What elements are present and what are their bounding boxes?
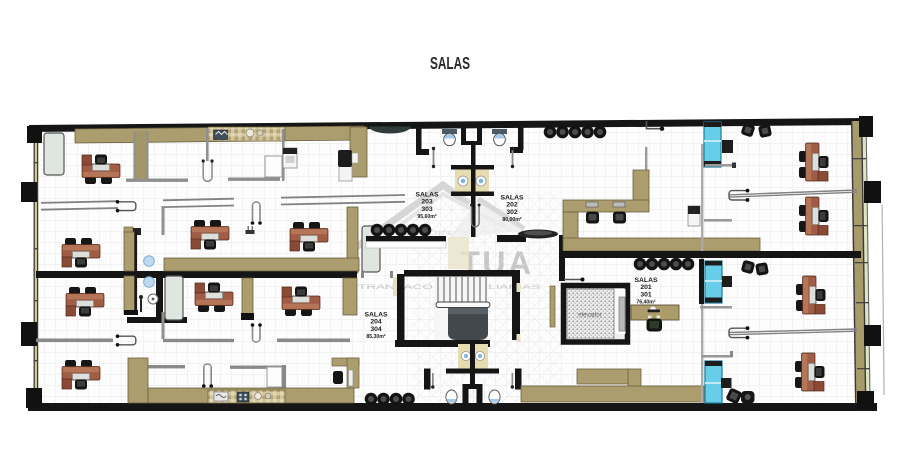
svg-text:SALAS: SALAS bbox=[415, 192, 439, 199]
svg-text:95,60m²: 95,60m² bbox=[417, 214, 437, 220]
svg-text:301: 301 bbox=[640, 291, 652, 298]
svg-text:80,00m²: 80,00m² bbox=[502, 217, 522, 223]
svg-text:SALAS: SALAS bbox=[500, 195, 524, 202]
svg-text:elevador: elevador bbox=[578, 312, 602, 319]
svg-text:SALAS: SALAS bbox=[364, 312, 388, 319]
svg-text:85,30m²: 85,30m² bbox=[366, 334, 386, 340]
svg-text:203: 203 bbox=[421, 199, 433, 206]
svg-text:302: 302 bbox=[506, 209, 518, 216]
svg-text:303: 303 bbox=[421, 206, 433, 213]
svg-text:201: 201 bbox=[640, 284, 652, 291]
svg-text:SALAS: SALAS bbox=[634, 277, 658, 284]
svg-text:204: 204 bbox=[370, 319, 382, 326]
svg-text:202: 202 bbox=[506, 202, 518, 209]
svg-text:76,40m²: 76,40m² bbox=[636, 300, 656, 306]
svg-text:SALAS: SALAS bbox=[430, 53, 470, 73]
svg-text:304: 304 bbox=[370, 326, 382, 333]
